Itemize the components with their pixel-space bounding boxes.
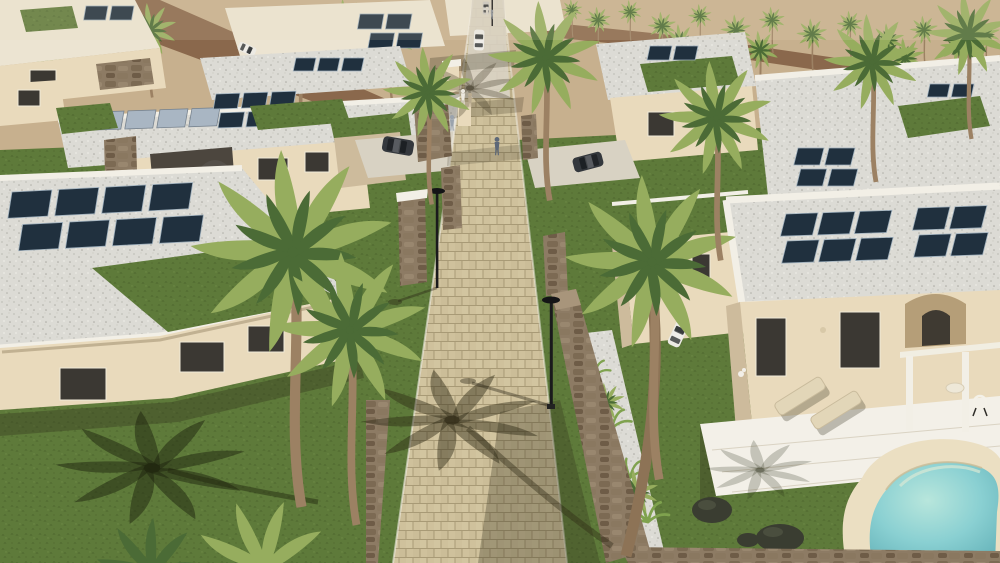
stone-gate-pillar — [441, 165, 462, 230]
window — [756, 318, 786, 376]
stone-pillar-right — [521, 114, 538, 160]
glass-door — [840, 312, 880, 368]
stone-gate-pillar — [398, 194, 427, 286]
solar-array — [293, 58, 364, 71]
arch-door — [922, 310, 950, 346]
wall-light — [820, 327, 826, 333]
white-cat — [738, 371, 744, 377]
stone-pillar-right — [543, 232, 568, 296]
aerial-villa-render: Aerial 3D architectural rendering of a m… — [0, 0, 1000, 563]
patio-table — [946, 383, 964, 393]
atmospheric-haze — [0, 0, 1000, 40]
render-viewport: Aerial 3D architectural rendering of a m… — [0, 0, 1000, 563]
